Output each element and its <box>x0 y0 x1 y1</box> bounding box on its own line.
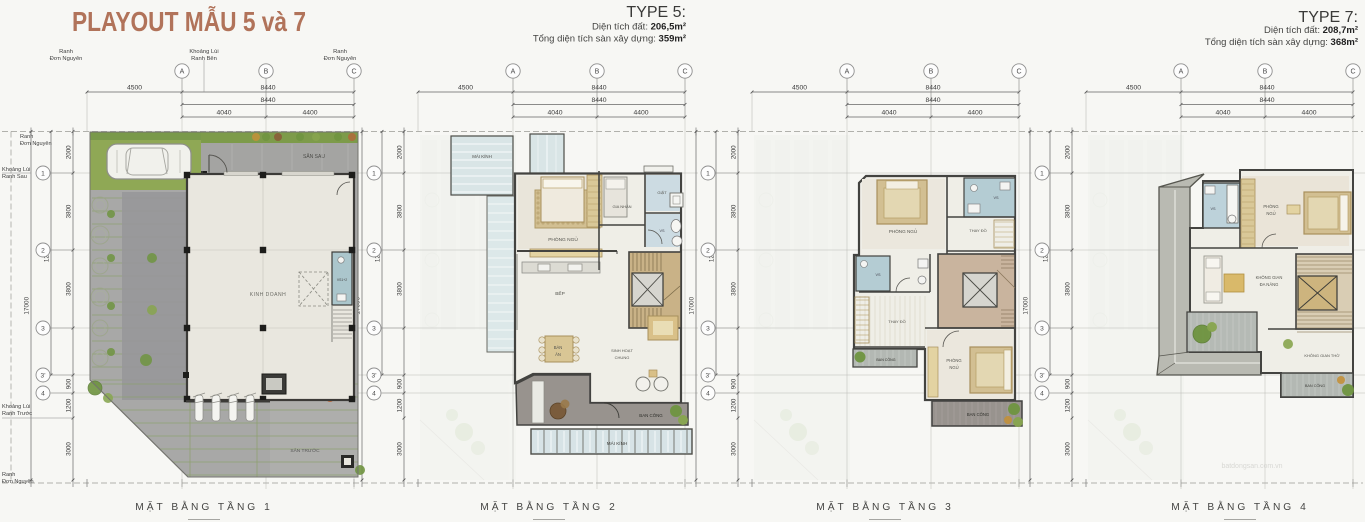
svg-text:3000: 3000 <box>66 442 73 456</box>
svg-text:3800: 3800 <box>66 204 73 218</box>
svg-text:KHÔNG GIAN THỜ: KHÔNG GIAN THỜ <box>1304 353 1340 358</box>
svg-text:8440: 8440 <box>260 85 275 92</box>
svg-text:VS: VS <box>1210 207 1216 211</box>
svg-text:3': 3' <box>372 372 377 379</box>
svg-text:BAN CÔNG: BAN CÔNG <box>876 357 895 362</box>
svg-text:2000: 2000 <box>1065 145 1072 159</box>
svg-text:4400: 4400 <box>967 110 982 117</box>
svg-text:1200: 1200 <box>66 398 73 412</box>
svg-text:GIA NHÂN: GIA NHÂN <box>612 204 631 209</box>
svg-text:2000: 2000 <box>66 145 73 159</box>
svg-text:B: B <box>264 69 269 76</box>
svg-text:Đơn Nguyên: Đơn Nguyên <box>50 56 83 62</box>
svg-text:1: 1 <box>1040 170 1044 177</box>
svg-text:B: B <box>595 69 600 76</box>
svg-text:MẶT BẰNG TẦNG 1: MẶT BẰNG TẦNG 1 <box>135 500 272 513</box>
svg-text:THAY ĐỒ: THAY ĐỒ <box>888 319 905 324</box>
svg-text:2: 2 <box>706 247 710 254</box>
svg-text:900: 900 <box>66 378 73 389</box>
svg-text:3: 3 <box>372 325 376 332</box>
svg-text:BÀN: BÀN <box>554 345 563 350</box>
svg-text:4: 4 <box>41 390 45 397</box>
svg-text:Ranh: Ranh <box>333 49 347 55</box>
svg-text:1200: 1200 <box>397 398 404 412</box>
svg-text:4500: 4500 <box>127 85 142 92</box>
svg-text:TYPE 5:: TYPE 5: <box>626 4 686 21</box>
svg-text:B: B <box>1263 69 1268 76</box>
svg-text:8440: 8440 <box>1259 97 1274 104</box>
svg-text:Khoảng Lùi: Khoảng Lùi <box>2 167 30 173</box>
svg-text:2000: 2000 <box>731 145 738 159</box>
svg-text:1200: 1200 <box>731 398 738 412</box>
svg-text:Ranh: Ranh <box>2 472 15 478</box>
svg-text:A: A <box>1179 69 1184 76</box>
svg-text:THAY ĐỒ: THAY ĐỒ <box>969 228 986 233</box>
svg-text:3000: 3000 <box>397 442 404 456</box>
svg-text:C: C <box>351 69 356 76</box>
svg-text:Tổng diện tích sàn xây dựng: 3: Tổng diện tích sàn xây dựng: 359m² <box>533 34 686 45</box>
svg-text:4040: 4040 <box>216 110 231 117</box>
svg-text:A: A <box>511 69 516 76</box>
svg-text:Tổng diện tích sàn xây dựng: 3: Tổng diện tích sàn xây dựng: 368m² <box>1205 37 1358 48</box>
svg-text:PLAYOUT MẪU 5 và 7: PLAYOUT MẪU 5 và 7 <box>72 6 306 37</box>
svg-text:SINH HOẠT: SINH HOẠT <box>611 348 633 353</box>
svg-text:BAN CÔNG: BAN CÔNG <box>1305 383 1325 388</box>
svg-text:KINH DOANH: KINH DOANH <box>250 292 286 298</box>
svg-text:CHUNG: CHUNG <box>615 355 630 360</box>
svg-text:3: 3 <box>41 325 45 332</box>
svg-text:Diện tích đất: 206,5m²: Diện tích đất: 206,5m² <box>592 22 686 33</box>
svg-text:8440: 8440 <box>591 85 606 92</box>
svg-text:3000: 3000 <box>1065 442 1072 456</box>
svg-text:4500: 4500 <box>1126 85 1141 92</box>
svg-text:4500: 4500 <box>458 85 473 92</box>
svg-text:4: 4 <box>706 390 710 397</box>
svg-text:NGỦ: NGỦ <box>949 365 958 370</box>
svg-text:3800: 3800 <box>397 282 404 296</box>
svg-text:Ranh Sau: Ranh Sau <box>2 174 27 180</box>
svg-text:3800: 3800 <box>731 282 738 296</box>
svg-text:Khoảng Lùi: Khoảng Lùi <box>2 404 30 410</box>
svg-text:Diện tích đất: 208,7m²: Diện tích đất: 208,7m² <box>1264 25 1358 36</box>
svg-text:Ranh Trước: Ranh Trước <box>2 411 32 417</box>
svg-text:3800: 3800 <box>66 282 73 296</box>
svg-text:4: 4 <box>372 390 376 397</box>
svg-text:4400: 4400 <box>1301 110 1316 117</box>
svg-text:MẶT BẰNG TẦNG 3: MẶT BẰNG TẦNG 3 <box>816 500 953 513</box>
svg-text:17000: 17000 <box>1023 296 1030 314</box>
svg-text:3': 3' <box>706 372 711 379</box>
svg-text:4400: 4400 <box>302 110 317 117</box>
svg-text:BẾP: BẾP <box>555 290 565 297</box>
svg-text:MÁI KÍNH: MÁI KÍNH <box>607 440 627 446</box>
svg-text:VS1+2: VS1+2 <box>337 278 347 282</box>
svg-text:A: A <box>180 69 185 76</box>
svg-text:1: 1 <box>372 170 376 177</box>
svg-text:3: 3 <box>1040 325 1044 332</box>
svg-text:1200: 1200 <box>1065 398 1072 412</box>
svg-text:3000: 3000 <box>731 442 738 456</box>
svg-text:900: 900 <box>1065 378 1072 389</box>
svg-text:8440: 8440 <box>260 97 275 104</box>
svg-text:Đơn Nguyên: Đơn Nguyên <box>324 56 357 62</box>
svg-text:4040: 4040 <box>881 110 896 117</box>
svg-text:2000: 2000 <box>397 145 404 159</box>
svg-text:4400: 4400 <box>633 110 648 117</box>
svg-text:900: 900 <box>731 378 738 389</box>
svg-text:C: C <box>1350 69 1355 76</box>
svg-text:2: 2 <box>372 247 376 254</box>
svg-text:A: A <box>845 69 850 76</box>
svg-text:3800: 3800 <box>1065 282 1072 296</box>
svg-text:VS: VS <box>993 196 999 200</box>
svg-text:Khoảng Lùi: Khoảng Lùi <box>189 49 218 55</box>
svg-text:1: 1 <box>41 170 45 177</box>
svg-text:B: B <box>929 69 934 76</box>
svg-text:ĐA NĂNG: ĐA NĂNG <box>1260 282 1279 287</box>
svg-text:3': 3' <box>1040 372 1045 379</box>
svg-text:Ranh: Ranh <box>59 49 73 55</box>
svg-text:KHÔNG GIAN: KHÔNG GIAN <box>1256 275 1283 280</box>
svg-text:NGỦ: NGỦ <box>1266 211 1275 216</box>
svg-text:GIẶT: GIẶT <box>657 190 667 195</box>
svg-text:VS: VS <box>659 229 665 233</box>
svg-text:TYPE 7:: TYPE 7: <box>1298 9 1358 26</box>
svg-text:3800: 3800 <box>731 204 738 218</box>
svg-text:BAN CÔNG: BAN CÔNG <box>639 413 663 418</box>
svg-text:PHÒNG NGỦ: PHÒNG NGỦ <box>548 236 578 243</box>
svg-text:3: 3 <box>706 325 710 332</box>
svg-text:MẶT BẰNG TẦNG 2: MẶT BẰNG TẦNG 2 <box>480 500 617 513</box>
svg-text:PHÒNG: PHÒNG <box>946 358 961 363</box>
svg-text:ĂN: ĂN <box>555 352 561 357</box>
svg-text:C: C <box>1016 69 1021 76</box>
svg-text:MÁI KÍNH: MÁI KÍNH <box>472 154 492 159</box>
svg-text:2: 2 <box>41 247 45 254</box>
svg-text:PHÒNG: PHÒNG <box>1263 204 1278 209</box>
svg-text:4040: 4040 <box>547 110 562 117</box>
svg-text:4040: 4040 <box>1215 110 1230 117</box>
svg-text:4500: 4500 <box>792 85 807 92</box>
svg-text:3800: 3800 <box>1065 204 1072 218</box>
svg-text:SÂN TRƯỚC: SÂN TRƯỚC <box>290 447 320 454</box>
svg-text:BAN CÔNG: BAN CÔNG <box>967 412 989 417</box>
svg-text:3800: 3800 <box>397 204 404 218</box>
svg-text:2: 2 <box>1040 247 1044 254</box>
svg-text:C: C <box>682 69 687 76</box>
svg-text:batdongsan.com.vn: batdongsan.com.vn <box>1221 463 1282 470</box>
svg-text:17000: 17000 <box>689 296 696 314</box>
svg-text:3': 3' <box>41 372 46 379</box>
svg-text:17000: 17000 <box>24 296 31 314</box>
svg-text:VS: VS <box>875 273 881 277</box>
svg-text:Ranh: Ranh <box>20 134 33 140</box>
svg-text:8440: 8440 <box>1259 85 1274 92</box>
svg-text:8440: 8440 <box>925 97 940 104</box>
svg-text:Đơn Nguyên: Đơn Nguyên <box>20 141 52 147</box>
svg-text:Đơn Nguyên: Đơn Nguyên <box>2 479 34 485</box>
svg-text:8440: 8440 <box>925 85 940 92</box>
svg-text:4: 4 <box>1040 390 1044 397</box>
svg-text:900: 900 <box>397 378 404 389</box>
svg-text:MẶT BẰNG TẦNG 4: MẶT BẰNG TẦNG 4 <box>1171 500 1308 513</box>
svg-text:8440: 8440 <box>591 97 606 104</box>
svg-text:1: 1 <box>706 170 710 177</box>
svg-text:PHÒNG NGỦ: PHÒNG NGỦ <box>889 228 917 234</box>
